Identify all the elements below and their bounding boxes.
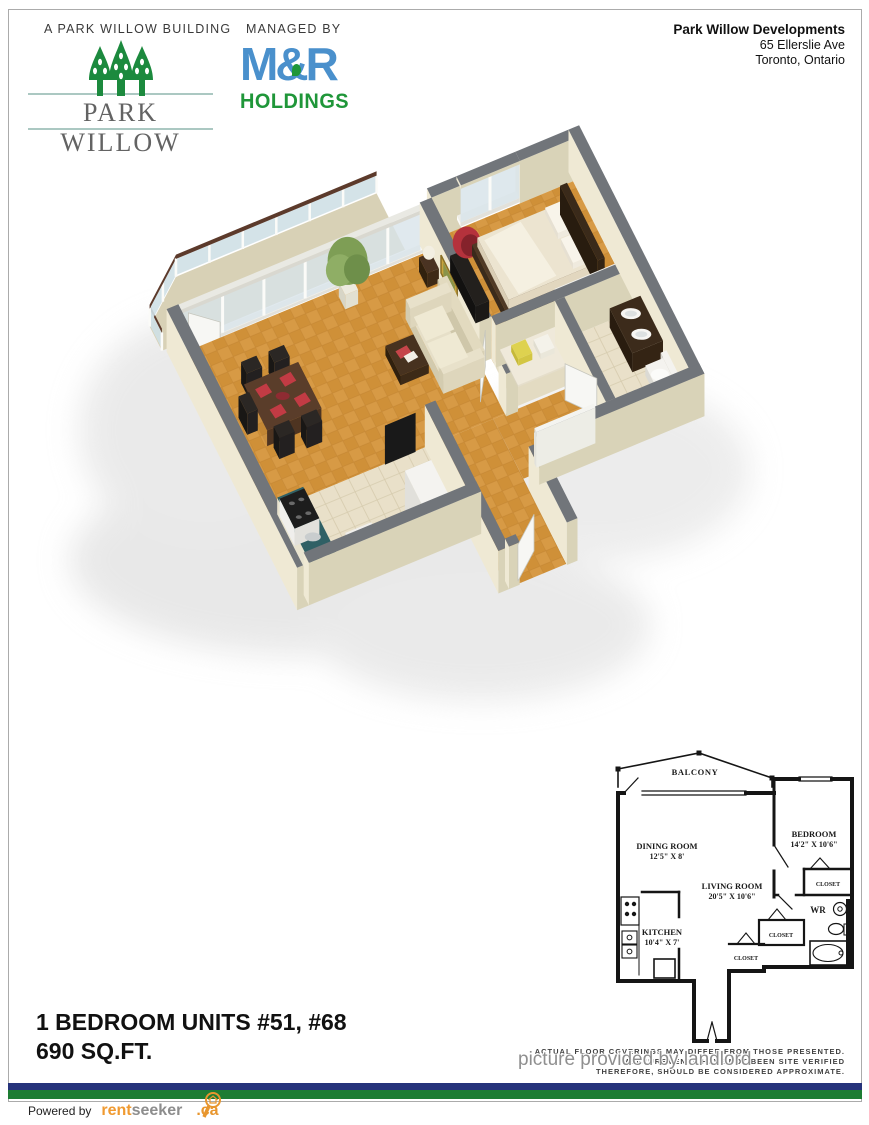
- label-kitchen-dims: 10'4" X 7': [645, 938, 680, 947]
- floorplan-flyer-page: { "header": { "tagline_left": "A PARK WI…: [0, 0, 869, 1125]
- label-living: LIVING ROOM: [702, 881, 763, 891]
- label-kitchen: KITCHEN: [642, 927, 683, 937]
- label-balcony: BALCONY: [672, 767, 719, 777]
- floorplan-3d: [70, 125, 750, 700]
- watermark-text: picture provided by landlord: [518, 1049, 751, 1071]
- label-living-dims: 20'5" X 10'6": [708, 892, 755, 901]
- label-closet-1: CLOSET: [816, 882, 840, 888]
- label-bedroom-dims: 14'2" X 10'6": [790, 840, 837, 849]
- floorplan-2d: BALCONY DINING ROOM 12'5" X 8' LIVING RO…: [616, 751, 853, 1042]
- label-wr: WR: [810, 905, 826, 915]
- label-dining: DINING ROOM: [636, 841, 697, 851]
- floorplans-canvas: BALCONY DINING ROOM 12'5" X 8' LIVING RO…: [0, 0, 869, 1125]
- label-dining-dims: 12'5" X 8': [650, 852, 685, 861]
- label-bedroom: BEDROOM: [792, 829, 837, 839]
- label-closet-2: CLOSET: [769, 933, 793, 939]
- label-closet-3: CLOSET: [734, 956, 758, 962]
